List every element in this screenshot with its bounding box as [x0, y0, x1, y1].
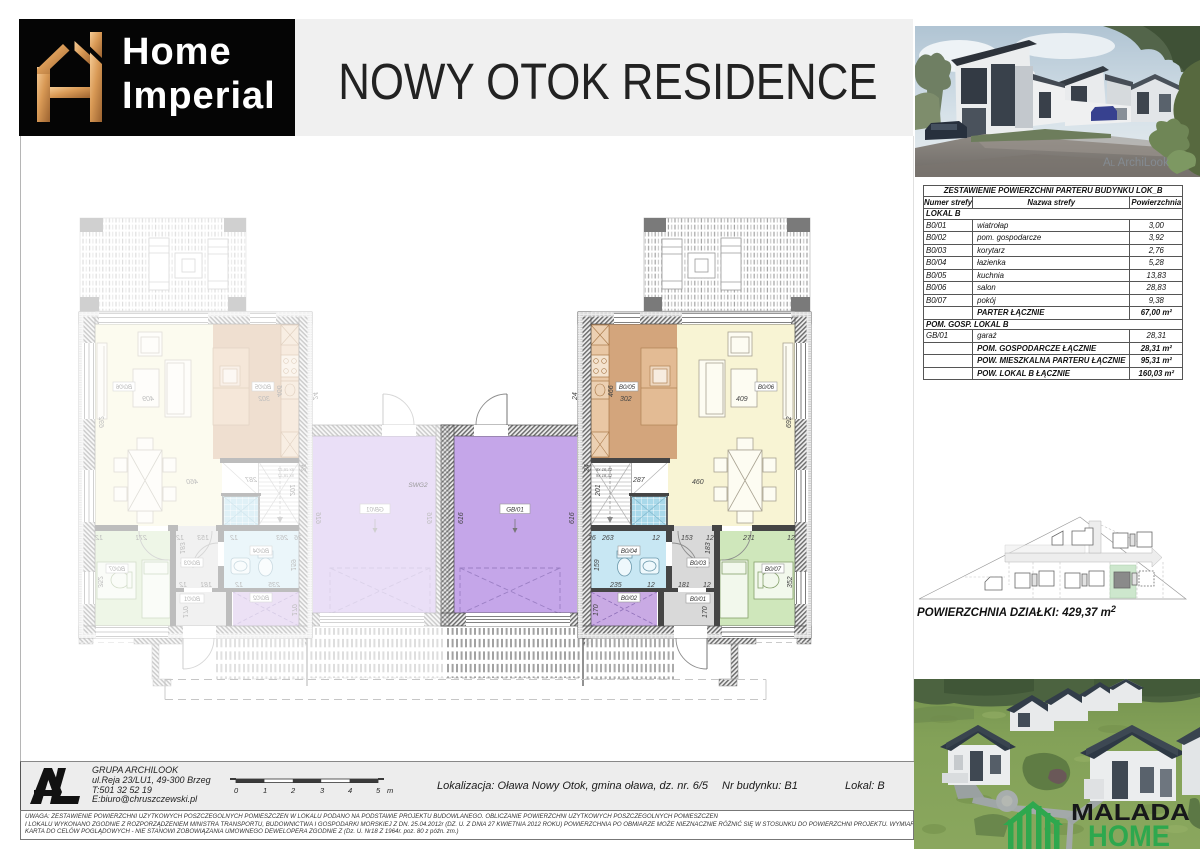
- svg-text:AL ArchiLook: AL ArchiLook: [1103, 157, 1169, 169]
- svg-text:m: m: [387, 786, 393, 795]
- svg-text:HOME: HOME: [1088, 820, 1170, 849]
- svg-text:0: 0: [234, 786, 239, 795]
- svg-text:SWG2: SWG2: [408, 482, 428, 489]
- svg-text:3: 3: [320, 786, 325, 795]
- svg-text:4: 4: [348, 786, 352, 795]
- svg-text:5: 5: [376, 786, 381, 795]
- svg-text:2: 2: [290, 786, 296, 795]
- svg-text:1: 1: [263, 786, 267, 795]
